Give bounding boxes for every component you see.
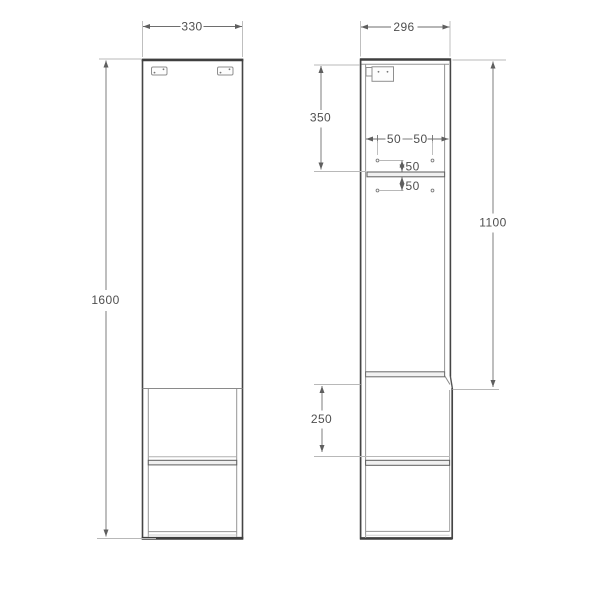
front-middle-shelf — [148, 460, 236, 465]
bracket-screw-icon — [154, 72, 156, 74]
bracket-plate — [152, 67, 168, 75]
side-lower-compartment-dimension: 250 — [311, 385, 450, 457]
side-door-chamfer-inner — [445, 376, 451, 385]
shelf-pin-horizontal-dimensions: 50 50 — [366, 132, 449, 155]
side-wall-bracket — [366, 67, 394, 82]
dim-label-pin-right-inset: 50 — [413, 132, 427, 146]
dim-label-front-width: 330 — [181, 20, 202, 34]
bracket-screw-icon — [229, 68, 231, 70]
bracket-body — [372, 67, 394, 82]
shelf-pin-hole — [431, 189, 434, 192]
bracket-plate — [218, 67, 234, 75]
side-fixed-panel — [366, 372, 445, 377]
dim-label-lower-compartment: 250 — [311, 412, 332, 426]
front-cabinet-body — [143, 60, 243, 539]
shelf-pin-hole — [376, 189, 379, 192]
shelf-pin-hole — [431, 159, 434, 162]
dim-label-pin-below-shelf: 50 — [406, 179, 420, 193]
bracket-screw-icon — [387, 71, 389, 73]
front-height-dimension: 1600 — [91, 59, 156, 539]
dim-label-front-height: 1600 — [91, 293, 119, 307]
side-depth-dimension: 296 — [361, 20, 451, 57]
bracket-screw-icon — [220, 72, 222, 74]
front-wall-bracket-left — [152, 67, 168, 75]
front-width-dimension: 330 — [143, 20, 243, 58]
side-middle-shelf — [366, 460, 450, 465]
dim-label-pin-left-inset: 50 — [387, 132, 401, 146]
cabinet-drawing: 330 1600 — [0, 0, 600, 600]
side-door-height-dimension: 1100 — [453, 60, 507, 390]
technical-drawing-canvas: 330 1600 — [0, 0, 600, 600]
bracket-hook — [366, 68, 372, 77]
shelf-pin-hole — [376, 159, 379, 162]
dim-label-side-depth: 296 — [393, 20, 414, 34]
dim-label-top-section: 350 — [310, 111, 331, 125]
bracket-screw-icon — [163, 68, 165, 70]
front-wall-bracket-right — [218, 67, 234, 75]
front-view — [142, 60, 244, 539]
side-view — [360, 59, 453, 540]
side-top-section-dimension: 350 — [310, 65, 366, 172]
bracket-screw-icon — [378, 71, 380, 73]
side-door-chamfer-outer — [450, 377, 452, 389]
dim-label-door-height: 1100 — [479, 216, 506, 230]
dim-label-pin-above-shelf: 50 — [406, 160, 420, 174]
